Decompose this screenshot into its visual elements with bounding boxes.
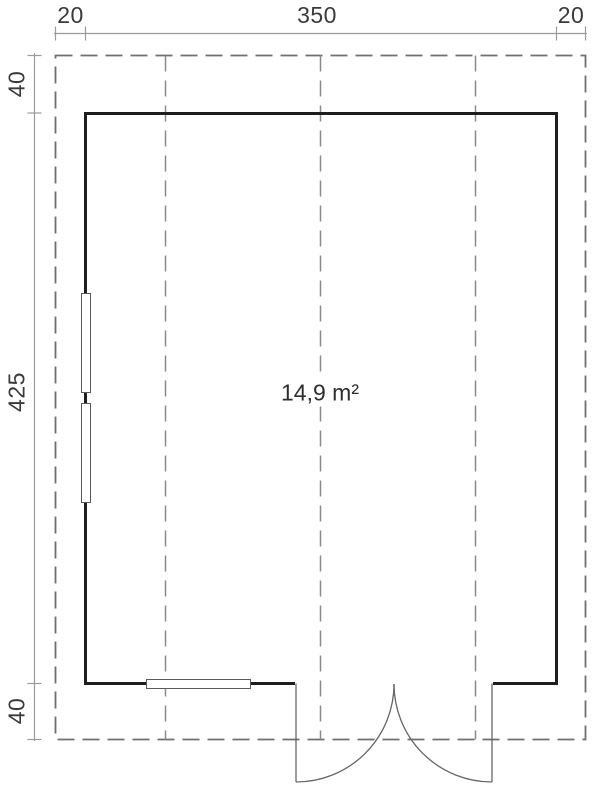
dim-label-top-left-overhang: 20: [57, 4, 84, 27]
floor-plan-canvas: 20 350 20 40 425 40 14,9 m²: [0, 0, 600, 790]
top-dimension-line: [54, 27, 587, 41]
dim-label-depth: 425: [6, 372, 29, 412]
dim-label-side-top-overhang: 40: [6, 71, 29, 98]
area-label: 14,9 m²: [276, 380, 364, 407]
double-door: [296, 684, 492, 783]
dim-label-side-bottom-overhang: 40: [6, 698, 29, 725]
dim-label-top-right-overhang: 20: [558, 4, 585, 27]
door-swing-arc-left: [296, 684, 394, 782]
window-left-lower: [82, 404, 91, 503]
door-swing-arc-right: [394, 684, 492, 782]
side-dimension-line: [28, 53, 42, 741]
window-bottom: [147, 680, 251, 689]
window-left-upper: [82, 294, 91, 393]
dim-label-width: 350: [297, 4, 337, 27]
